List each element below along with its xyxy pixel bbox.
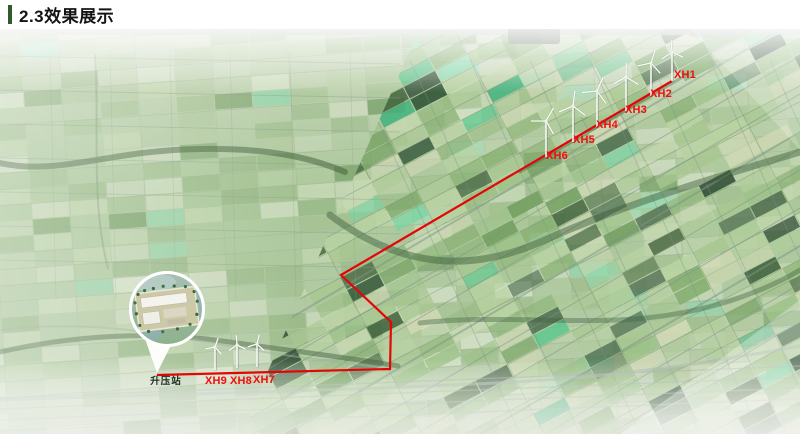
turbine-label: XH1 <box>674 69 696 81</box>
title-accent-bar <box>8 5 12 24</box>
turbine-label: XH6 <box>546 150 568 162</box>
page-title: 2.3效果展示 <box>19 2 114 27</box>
turbine-label: XH4 <box>596 119 619 131</box>
turbine-label: XH5 <box>573 134 595 146</box>
turbine-label: XH7 <box>253 374 275 386</box>
turbine-label: XH2 <box>650 88 672 100</box>
station-label: 升压站 <box>150 375 182 387</box>
turbine-label: XH8 <box>230 375 252 387</box>
turbine-label: XH3 <box>625 104 647 116</box>
slide-header: 2.3效果展示 <box>0 0 800 29</box>
slide: XH1XH2XH3XH4XH5XH6XH7XH8XH9 <box>0 0 800 434</box>
turbine-label: XH9 <box>205 375 227 387</box>
map-image: XH1XH2XH3XH4XH5XH6XH7XH8XH9 <box>0 0 800 434</box>
